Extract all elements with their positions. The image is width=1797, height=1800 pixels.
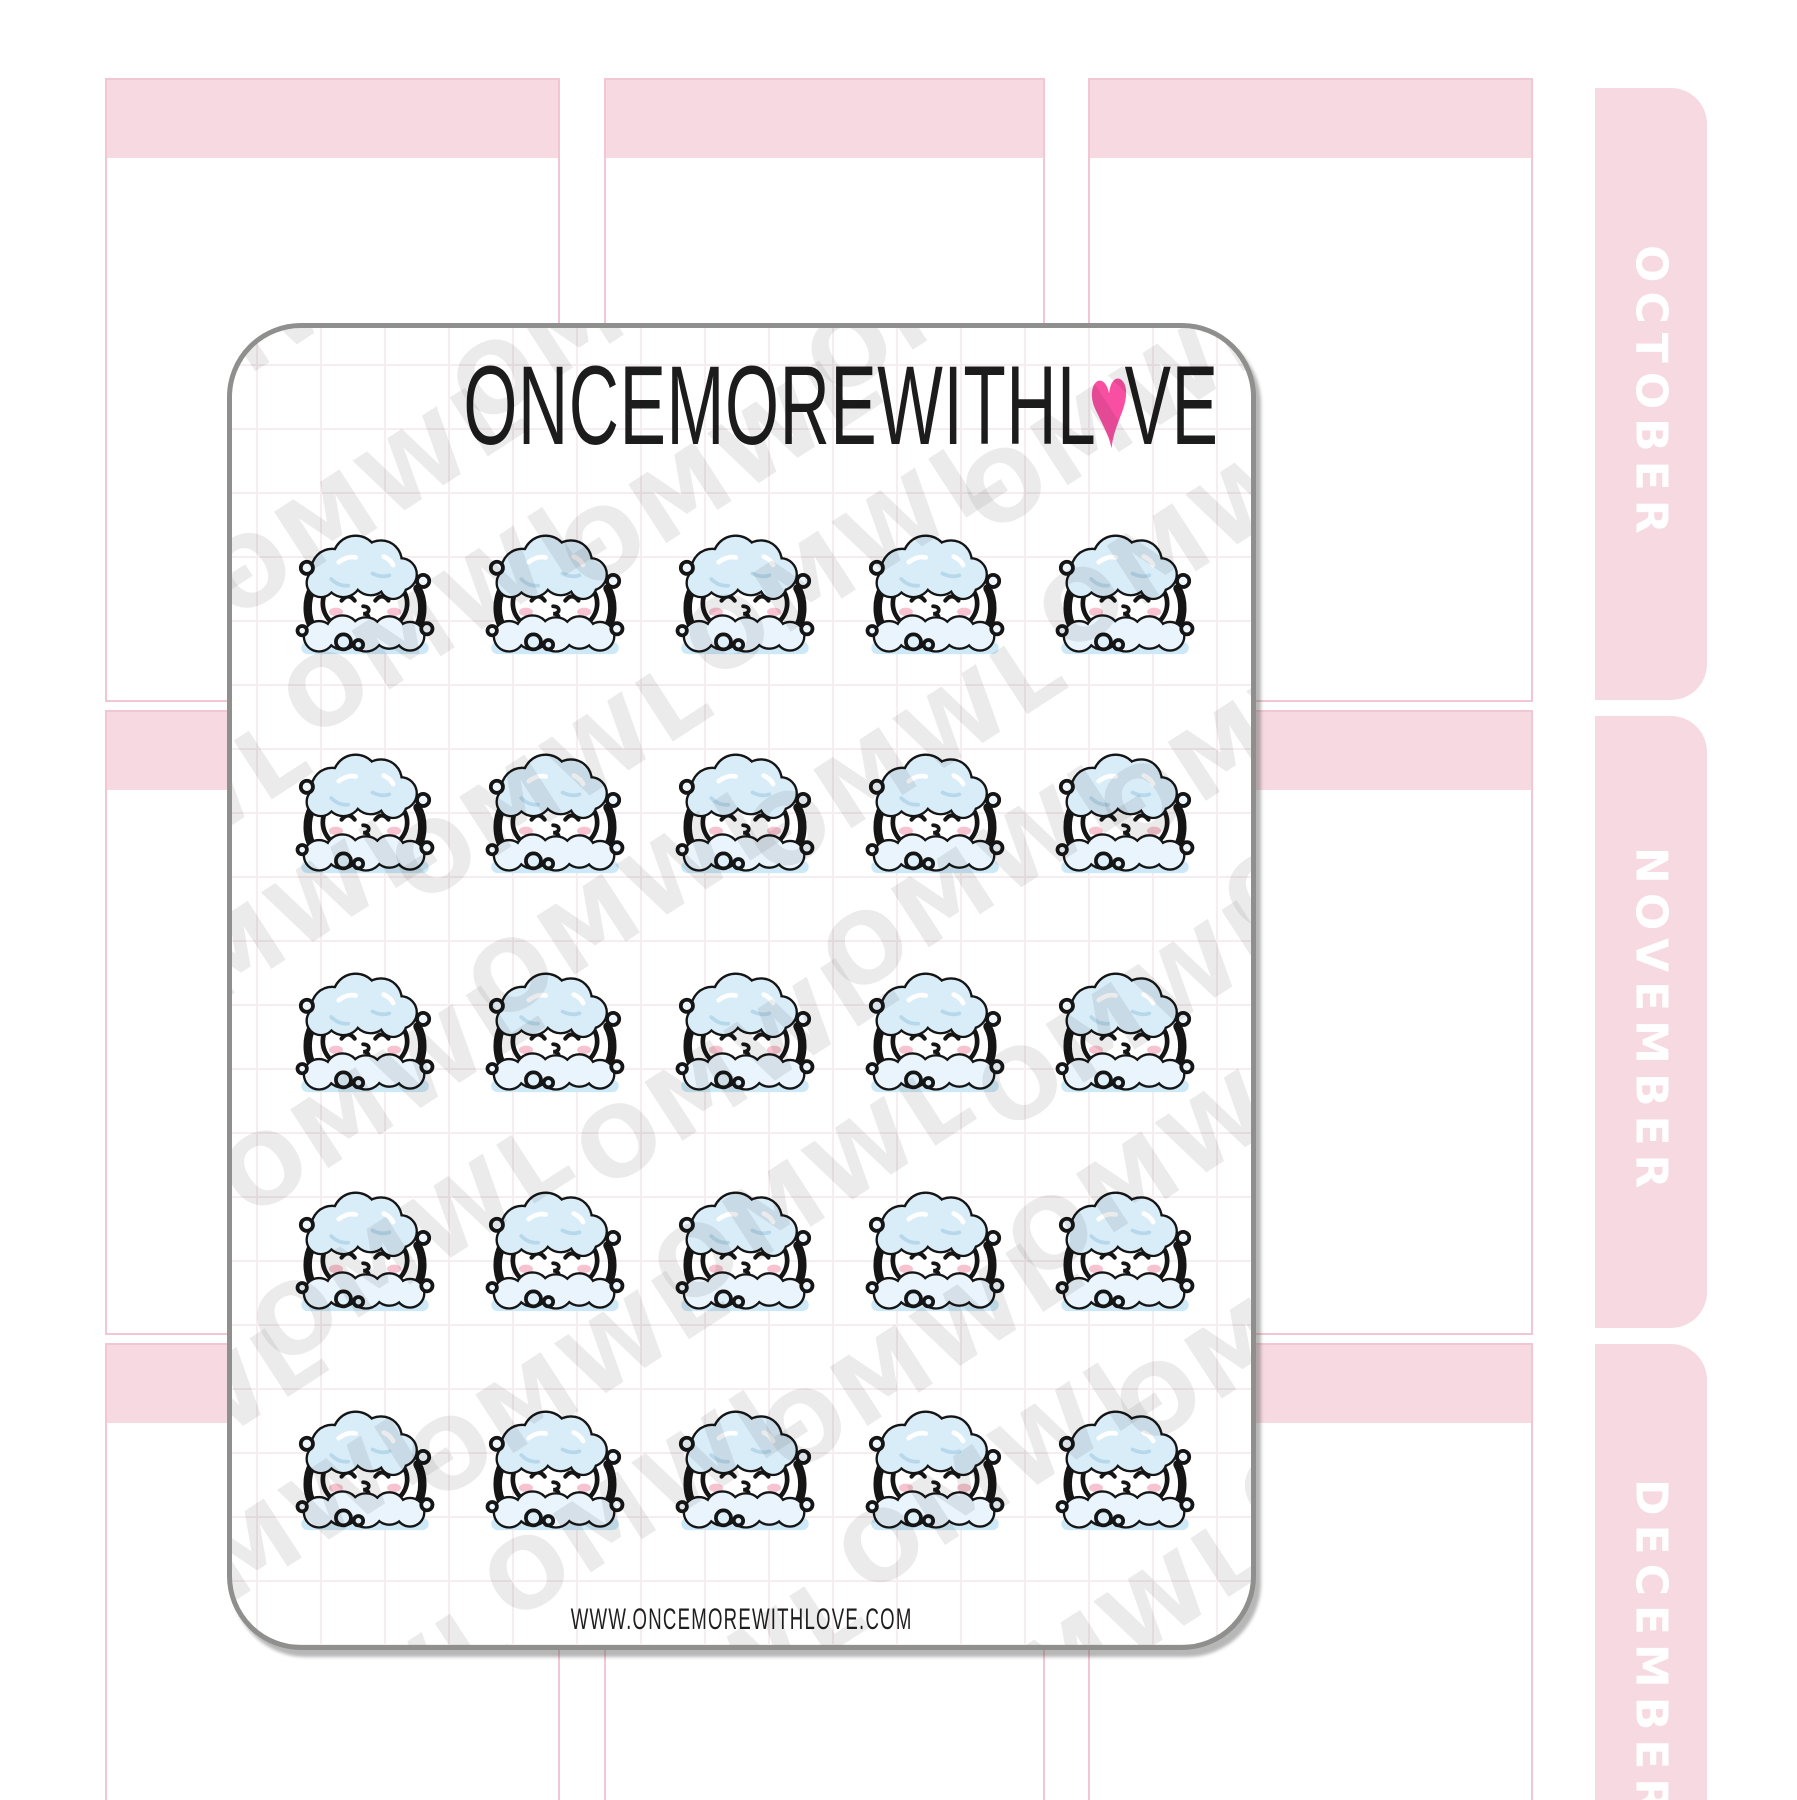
watermark-text: OMWL bbox=[227, 1336, 286, 1576]
bubble-bath-sticker bbox=[290, 1189, 440, 1315]
bubble-bath-sticker bbox=[1050, 1408, 1200, 1534]
tab-november: NOVEMBER bbox=[1595, 716, 1707, 1328]
bubble-bath-sticker bbox=[860, 1408, 1010, 1534]
bubble-bath-sticker bbox=[860, 970, 1010, 1096]
sticker-sheet: ONCEMOREWITHL♥VE bbox=[227, 323, 1256, 1650]
planner-header-band bbox=[107, 80, 558, 158]
bubble-bath-sticker bbox=[1050, 751, 1200, 877]
tab-october-label: OCTOBER bbox=[1626, 245, 1677, 543]
bubble-bath-sticker bbox=[670, 1189, 820, 1315]
bubble-bath-sticker bbox=[480, 970, 630, 1096]
watermark-text: OMWL bbox=[1207, 714, 1256, 954]
watermark-text: OMWL bbox=[227, 738, 270, 978]
bubble-bath-sticker bbox=[480, 532, 630, 658]
brand-logo-text: ONCEMOREWITHL♥VE bbox=[463, 350, 1218, 462]
bubble-bath-sticker bbox=[860, 751, 1010, 877]
heart-icon: ♥ bbox=[1086, 343, 1133, 468]
bubble-bath-sticker bbox=[670, 532, 820, 658]
bubble-bath-sticker bbox=[290, 1408, 440, 1534]
bubble-bath-sticker bbox=[860, 1189, 1010, 1315]
tab-october: OCTOBER bbox=[1595, 88, 1707, 700]
website-url: WWW.ONCEMOREWITHLOVE.COM bbox=[232, 1600, 1251, 1639]
logo-text-right: VE bbox=[1125, 343, 1219, 468]
bubble-bath-sticker bbox=[1050, 1189, 1200, 1315]
watermark-text: OMWL bbox=[1223, 1312, 1256, 1552]
bubble-bath-sticker bbox=[290, 751, 440, 877]
bubble-bath-sticker bbox=[670, 751, 820, 877]
bubble-bath-sticker bbox=[860, 532, 1010, 658]
bubble-bath-sticker bbox=[290, 532, 440, 658]
bubble-bath-sticker bbox=[670, 970, 820, 1096]
tab-december: DECEMBER bbox=[1595, 1344, 1707, 1800]
bubble-bath-sticker bbox=[480, 1408, 630, 1534]
sticker-grid bbox=[290, 532, 1200, 1534]
bubble-bath-sticker bbox=[480, 1189, 630, 1315]
brand-logo: ONCEMOREWITHL♥VE bbox=[232, 350, 1251, 462]
bubble-bath-sticker bbox=[290, 970, 440, 1096]
planner-header-band bbox=[606, 80, 1043, 158]
bubble-bath-sticker bbox=[480, 751, 630, 877]
tab-november-label: NOVEMBER bbox=[1626, 847, 1677, 1197]
website-url-text: WWW.ONCEMOREWITHLOVE.COM bbox=[571, 1600, 913, 1639]
bubble-bath-sticker bbox=[1050, 970, 1200, 1096]
tab-december-label: DECEMBER bbox=[1626, 1479, 1677, 1800]
planner-header-band bbox=[1090, 80, 1531, 158]
bubble-bath-sticker bbox=[1050, 532, 1200, 658]
bubble-bath-sticker bbox=[670, 1408, 820, 1534]
logo-text-left: ONCEMOREWITHL bbox=[463, 343, 1096, 468]
product-image: OCTOBER NOVEMBER DECEMBER ONCEMOREWITHL♥… bbox=[0, 0, 1797, 1800]
